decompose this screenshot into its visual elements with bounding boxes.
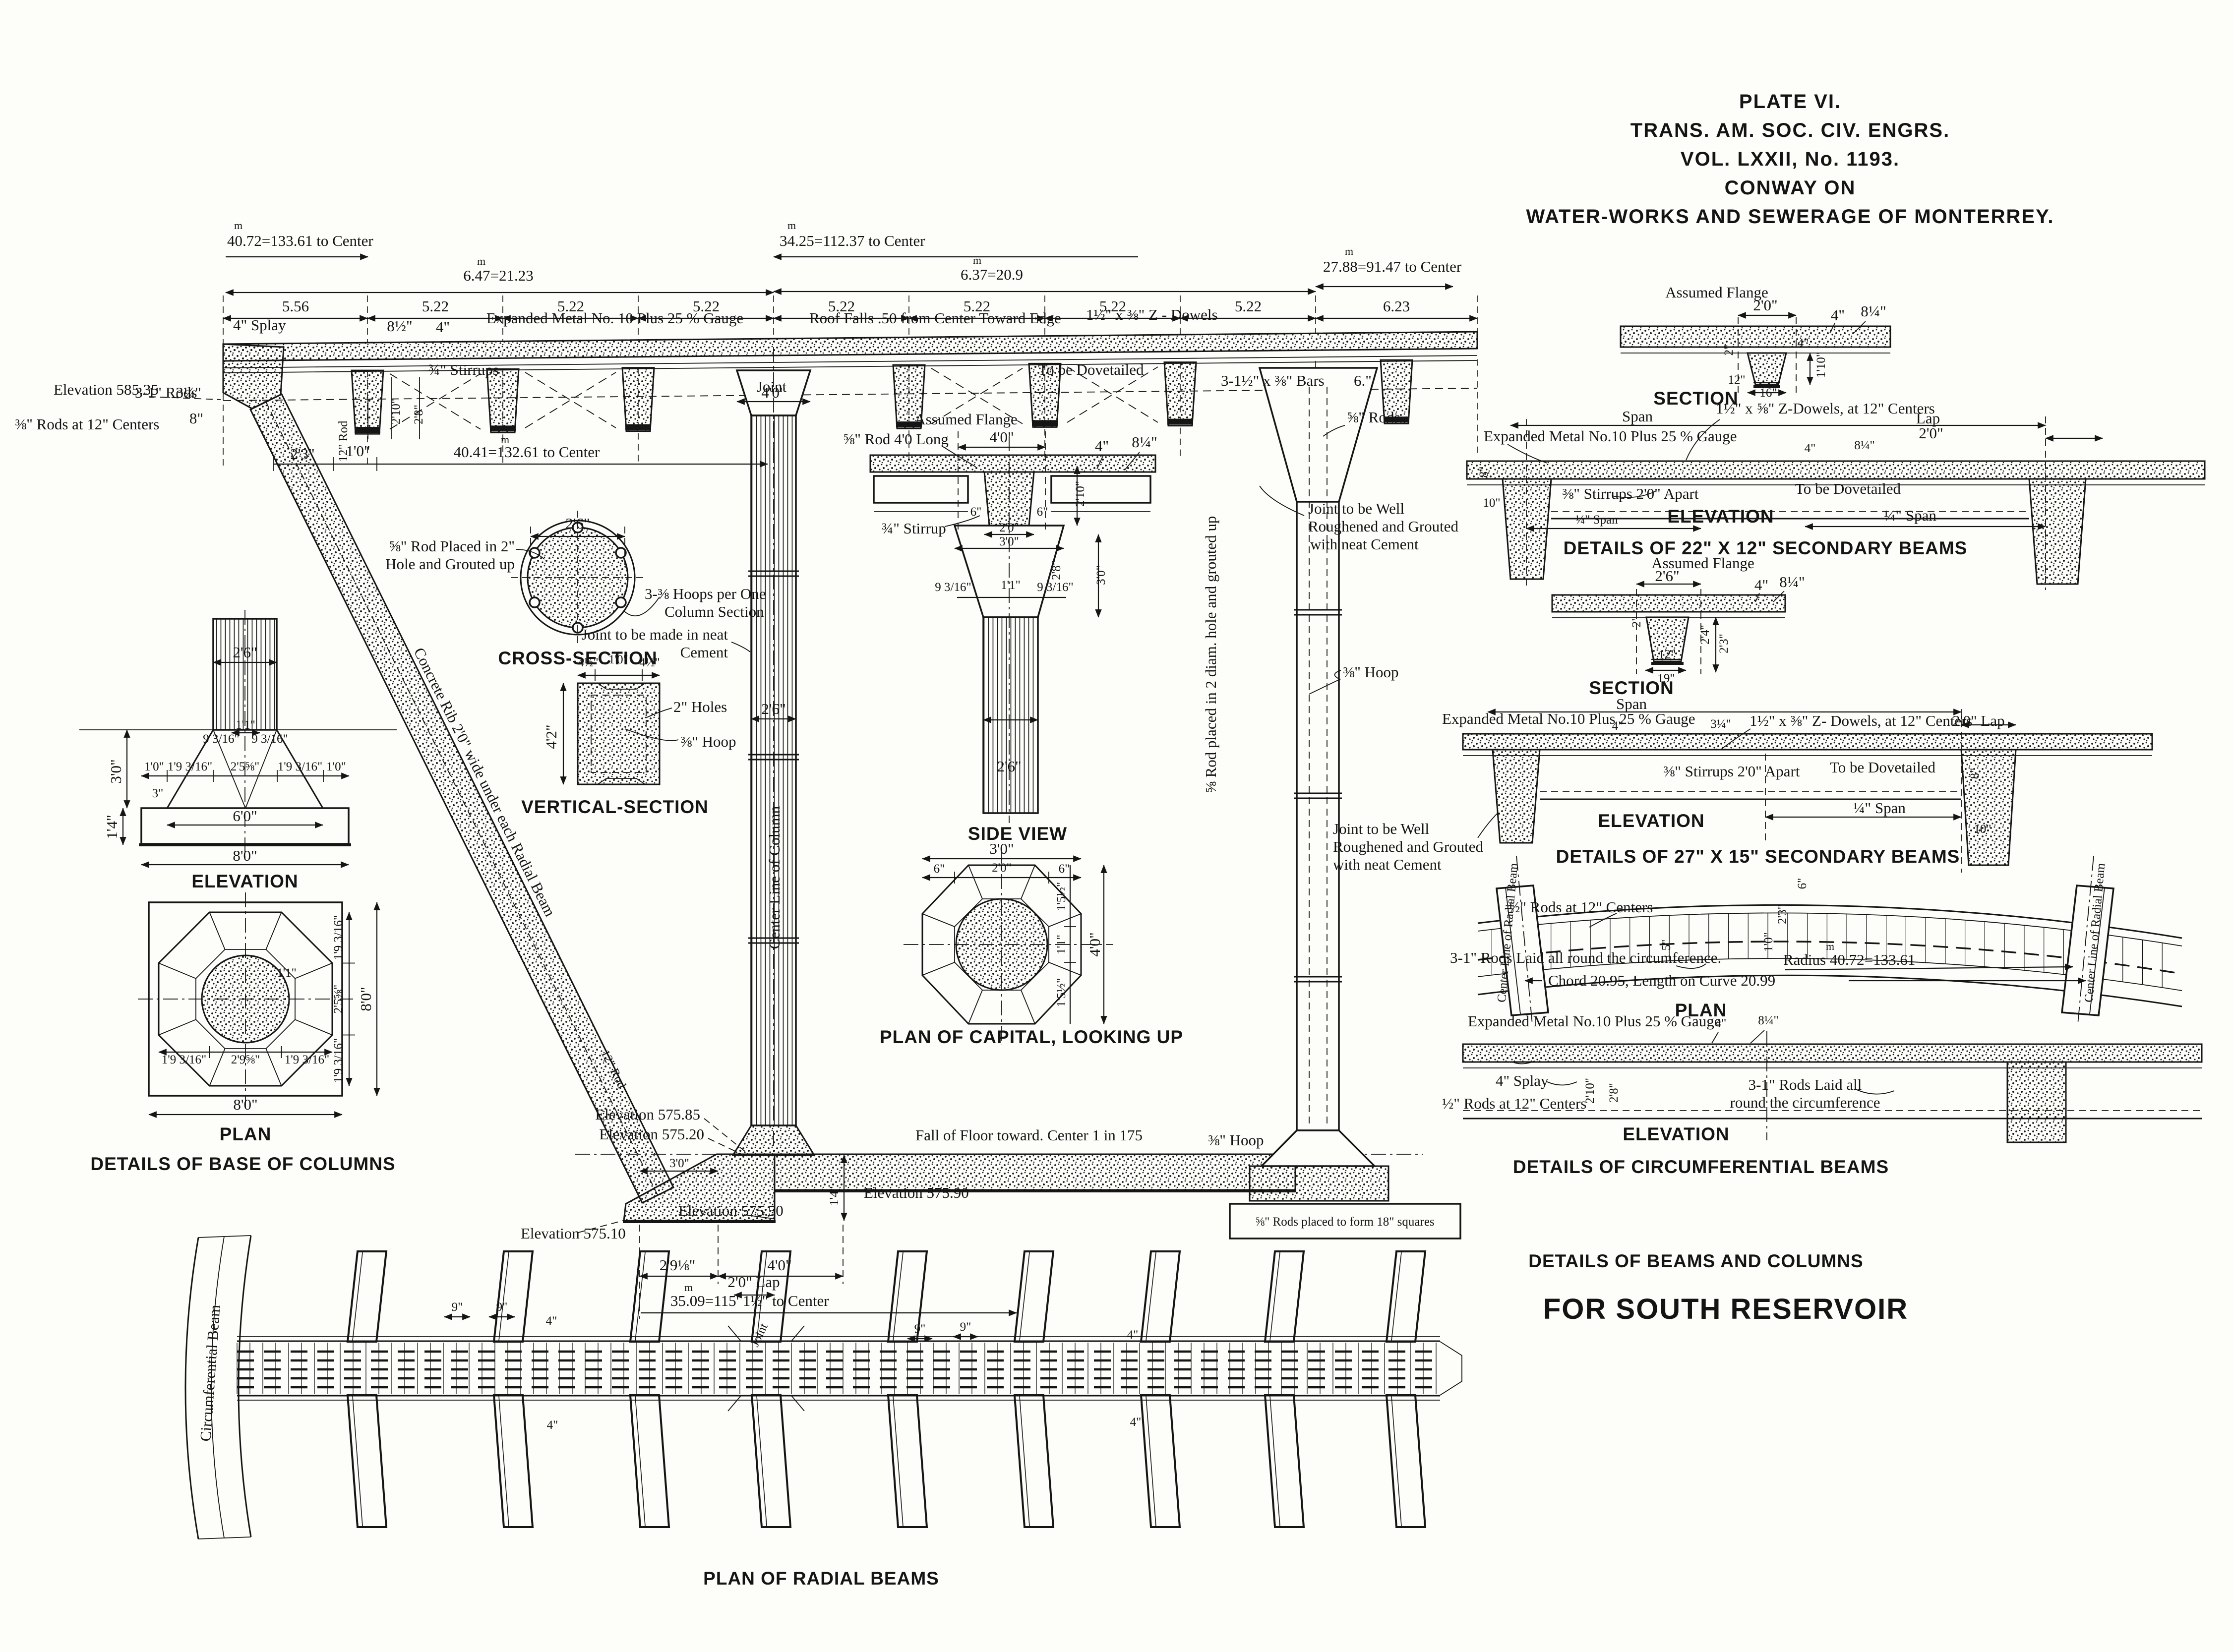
note-label: To be Dovetailed: [1795, 480, 1901, 497]
generated-line: [1164, 362, 1196, 426]
dim-label: 4'2": [543, 724, 560, 749]
note-label: 3-⅜ Hoops per One: [645, 585, 766, 602]
note-label: Expanded Metal No. 10 Plus 25 % Gauge: [486, 309, 743, 327]
dim-label: 3'0": [107, 759, 124, 783]
right-column: [1230, 368, 1460, 1239]
sheet-caption: DETAILS OF BEAMS AND COLUMNS: [1528, 1251, 1863, 1271]
dim-label: 6.37=20.9: [961, 266, 1023, 283]
dim-label: 1'4": [103, 815, 121, 839]
dim-label: 1'4": [828, 1186, 841, 1206]
dim-label: 1'5½": [1055, 978, 1068, 1007]
view-caption: ELEVATION: [1667, 506, 1774, 527]
note-label: Joint to be Well: [1308, 500, 1404, 517]
plate-number: PLATE VI.: [1739, 91, 1841, 113]
note-label: ⅝" Rod 4'0 Long: [843, 430, 949, 448]
dim-label: Radius 40.72=133.61: [1783, 951, 1915, 968]
note-label: with neat Cement: [1333, 856, 1442, 873]
dim-label: 5.56: [282, 297, 309, 315]
generated-line: [888, 1395, 927, 1527]
dim-label: 1'5½": [1055, 882, 1068, 911]
dim-label: 9 3/16": [1037, 581, 1073, 594]
dim-label: 1'9 3/16": [168, 760, 212, 773]
dim-label: 8¼": [1861, 302, 1886, 320]
dim-label: 9": [452, 1300, 463, 1314]
generated-line: [752, 1395, 790, 1527]
note-label: Hole and Grouted up: [385, 555, 515, 573]
note-label: Cement: [680, 644, 728, 661]
dim-label: 1'9 3/16": [162, 1053, 206, 1066]
dim-label: 3¼": [176, 384, 201, 401]
generated-line: [1387, 1395, 1425, 1527]
dim-label: 2'8": [412, 405, 425, 424]
dim-label: 3'0": [999, 535, 1019, 548]
dim-label: 2'0": [992, 861, 1012, 875]
author-line: CONWAY ON: [1725, 177, 1856, 199]
dim-label: 1'10": [1814, 352, 1828, 378]
dim-label: 5.22: [422, 297, 449, 315]
generated-line: [352, 370, 383, 434]
generated-line: [1265, 1395, 1304, 1527]
note-label: 2" Holes: [673, 698, 727, 715]
dim-label: 2'6": [761, 700, 785, 717]
dim-label: 4": [1127, 1328, 1139, 1342]
society-line: TRANS. AM. SOC. CIV. ENGRS.: [1630, 119, 1950, 141]
dim-label: 1'0": [144, 760, 164, 773]
dim-label: 2'3": [1717, 634, 1731, 653]
generated-line: [494, 1395, 533, 1527]
dim-label: 6'0": [233, 807, 257, 825]
dim-label: 8½": [387, 317, 412, 335]
dim-label: 6": [1796, 878, 1809, 889]
dim-label: 8": [1477, 467, 1491, 478]
dim-label: 4": [1130, 1416, 1142, 1429]
note-label: Joint to be made in neat: [582, 626, 728, 643]
meter-mark: m: [1826, 940, 1834, 952]
note-label: ⅝" Rods placed to form 18" squares: [1255, 1215, 1434, 1229]
meter-mark: m: [1345, 245, 1353, 257]
view-caption: PLAN OF CAPITAL, LOOKING UP: [880, 1027, 1183, 1047]
dim-label: 2'0": [999, 521, 1019, 534]
detail-caption: DETAILS OF BASE OF COLUMNS: [90, 1154, 395, 1174]
dim-label: 8'0": [233, 1096, 257, 1113]
dim-label: 2'3": [290, 445, 314, 463]
centerline-label: Center Line of Column: [766, 806, 783, 949]
view-caption: PLAN: [220, 1124, 272, 1144]
note-label: ½" Rods at 12" Centers: [1509, 898, 1653, 916]
dim-label: 2'6": [1655, 567, 1679, 585]
generated-line: [487, 369, 519, 432]
dim-label: 2'0": [1919, 424, 1943, 442]
dim-label: 3": [152, 787, 164, 800]
dim-label: 4": [546, 1314, 557, 1328]
dim-label: 10": [1483, 496, 1500, 510]
dim-label: 2'8": [1607, 1083, 1621, 1103]
dim-label: 12" Rod: [337, 420, 350, 462]
dim-label: 9": [960, 1320, 971, 1334]
dim-label: 9 3/16": [203, 732, 239, 746]
note-label: ¾" Stirrup: [882, 520, 946, 537]
dim-label: 2": [1630, 616, 1643, 628]
note-label: ⅜" Hoop: [1208, 1131, 1264, 1149]
dim-label: 4": [1754, 576, 1768, 593]
dim-label: 2": [1722, 345, 1736, 356]
dim-label: 2'6": [565, 515, 590, 532]
dim-label: 8¼": [1758, 1014, 1778, 1027]
dim-label: 1'0": [608, 653, 628, 666]
note-label: Roughened and Grouted: [1333, 838, 1484, 855]
dim-label: 1'1": [1001, 579, 1021, 592]
elevation-label: Elevation 575.20: [599, 1125, 704, 1143]
dim-label: 2'3": [1776, 904, 1789, 924]
dim-label: 2'0" Lap: [1952, 712, 2004, 729]
dim-label: 8¼": [1132, 433, 1157, 451]
note-label: ⅜" Hoop: [680, 733, 736, 750]
note-label: Expanded Metal No.10 Plus 25 % Gauge: [1484, 427, 1737, 445]
dim-label: 2'6": [997, 758, 1021, 775]
note-label: Assumed Flange: [914, 411, 1018, 428]
generated-line: [348, 1251, 386, 1342]
drawing-canvas: PLATE VI. TRANS. AM. SOC. CIV. ENGRS. VO…: [0, 0, 2233, 1652]
dim-label: 9": [914, 1322, 926, 1336]
dim-label: 40.41=132.61 to Center: [454, 443, 600, 461]
vertical-section: [563, 669, 678, 784]
dim-label: 2'8": [1050, 560, 1063, 580]
dim-label: 8": [1968, 768, 1982, 779]
dim-label: 12": [1728, 373, 1745, 387]
dim-label: 8¼": [1779, 573, 1805, 590]
note-label: Fall of Floor toward. Center 1 in 175: [915, 1126, 1143, 1144]
meter-mark: m: [787, 219, 796, 232]
dim-label: 8'0": [357, 987, 374, 1011]
note-label: Column Section: [664, 603, 764, 620]
generated-line: [1141, 1251, 1180, 1342]
note-label: ⅝" Rod Placed in 2": [389, 537, 515, 555]
dim-label: 1'1": [236, 718, 255, 732]
note-label: ¾" Stirrups: [428, 361, 499, 378]
dim-label: 1'9 3/16": [332, 1038, 345, 1083]
generated-line: [1387, 1251, 1425, 1342]
dim-label: 35.09=115' 1½" to Center: [670, 1292, 829, 1309]
note-label: To be Dovetailed: [1830, 759, 1936, 776]
view-caption: ELEVATION: [1623, 1124, 1729, 1144]
dim-label: 4'0": [989, 428, 1014, 446]
note-label: ⅜" Stirrups 2'0" Apart: [1562, 485, 1699, 502]
dim-label: 8¼": [1854, 439, 1874, 452]
dim-label: ¼" Span: [1884, 507, 1936, 524]
generated-line: [348, 1395, 386, 1527]
dim-label: 27.88=91.47 to Center: [1323, 258, 1462, 275]
dim-label: 4½": [578, 656, 598, 669]
dim-label: 9 3/16": [935, 581, 971, 594]
detail-caption: DETAILS OF 27" X 15" SECONDARY BEAMS: [1556, 846, 1960, 867]
dim-label: 1'1": [277, 966, 297, 980]
engineering-plate: PLATE VI. TRANS. AM. SOC. CIV. ENGRS. VO…: [0, 0, 2233, 1652]
note-label: 1½" x ⅝" Z-Dowels, at 12" Centers: [1716, 400, 1935, 417]
dim-label: 2'10": [1583, 1078, 1597, 1104]
generated-line: [1141, 1395, 1180, 1527]
dim-label: 40.72=133.61 to Center: [227, 232, 373, 249]
subject-line: WATER-WORKS AND SEWERAGE OF MONTERREY.: [1526, 206, 2054, 228]
dim-label: 5": [1660, 940, 1673, 951]
elevation-label: Elevation 575.85: [595, 1106, 700, 1123]
dim-label: 4": [1831, 306, 1845, 324]
dim-label: 1'1": [1055, 935, 1068, 954]
detail-caption: DETAILS OF CIRCUMFERENTIAL BEAMS: [1513, 1157, 1889, 1177]
dim-label: 2'5⅝": [332, 985, 345, 1013]
dim-label: 4": [1805, 442, 1816, 455]
dim-label: 2'10": [389, 399, 403, 424]
note-label: ⅝" Rods: [1347, 409, 1400, 426]
volume-line: VOL. LXXII, No. 1193.: [1681, 148, 1900, 170]
meter-mark: m: [501, 433, 509, 446]
note-label: 3-1" Rods Laid all round the circumferen…: [1450, 949, 1721, 966]
dim-label: 6.47=21.23: [463, 267, 533, 284]
dim-label: 6": [1037, 505, 1048, 519]
generated-line: [1015, 1395, 1053, 1527]
note-label: 4" Splay: [1496, 1072, 1549, 1089]
note-label: Joint to be Well: [1333, 820, 1429, 837]
view-caption: ELEVATION: [1598, 811, 1704, 831]
dim-label: 9 3/16": [251, 732, 288, 746]
meter-mark: m: [684, 1281, 693, 1294]
dim-label: 6.": [1354, 372, 1372, 389]
dim-label: 6": [970, 505, 982, 519]
meter-mark: m: [477, 255, 485, 267]
dim-label: 34.25=112.37 to Center: [780, 232, 925, 249]
dim-label: 1'0": [1762, 932, 1775, 952]
note-label: Expanded Metal No.10 Plus 25 % Gauge: [1442, 710, 1695, 727]
dim-label: 8": [189, 410, 203, 427]
dim-label: 3'0": [989, 840, 1014, 857]
view-caption: VERTICAL-SECTION: [521, 797, 709, 817]
generated-line: [630, 1395, 669, 1527]
dim-label: 2'0" Lap: [727, 1273, 780, 1291]
center-column: [731, 347, 814, 1155]
meter-mark: m: [973, 254, 981, 266]
dim-label: 1'0": [326, 760, 346, 773]
note-label: ½" Rods at 12" Centers: [1442, 1095, 1586, 1112]
note-label: Expanded Metal No.10 Plus 25 % Gauge: [1468, 1012, 1721, 1030]
dim-label: 4'0": [761, 384, 785, 401]
note-label: Roof Falls .50 from Center Toward Edge: [809, 309, 1061, 327]
dim-label: 2'10": [1074, 481, 1087, 507]
dim-label: 5.22: [1235, 297, 1262, 315]
dim-label: 1'9 3/16": [278, 760, 322, 773]
note-label: 3-1" Rods Laid all: [1749, 1076, 1862, 1093]
dim-label: 6": [1059, 862, 1070, 876]
dim-label: 4": [1612, 719, 1624, 733]
dim-label: 4'0": [1086, 932, 1103, 956]
dim-label: 6.23: [1383, 297, 1410, 315]
note-label: 1½" x ⅜" Z - Dowels: [1086, 306, 1218, 323]
dim-label: 12": [1658, 648, 1676, 661]
view-caption: SIDE VIEW: [968, 824, 1067, 844]
dim-label: 2'9⅝": [231, 1053, 260, 1066]
beam-label: Circumferential Beam: [196, 1304, 223, 1442]
generated-line: [1265, 1251, 1304, 1342]
dim-label: 2'5⅝": [231, 760, 259, 773]
dim-label: 16": [1759, 386, 1777, 400]
generated-line: [494, 1251, 533, 1342]
elevation-label: Elevation 575.90: [864, 1184, 969, 1201]
dim-label: 4½": [639, 656, 660, 669]
note-label: ⅜" Stirrups 2'0" Apart: [1663, 763, 1800, 780]
note-label: ⅜" Rods at 12" Centers: [15, 415, 159, 433]
detail-caption: PLAN OF RADIAL BEAMS: [703, 1568, 939, 1589]
dim-label: 2'0": [1753, 296, 1777, 314]
dim-label: 1'9 3/16": [332, 915, 345, 960]
dim-label: 4": [1715, 1017, 1727, 1030]
note-label: 3-1½" x ⅜" Bars: [1221, 372, 1325, 389]
elevation-label: Elevation 575.50: [678, 1202, 784, 1219]
dim-label: 2'9⅛": [660, 1256, 696, 1274]
generated-line: [1015, 1251, 1053, 1342]
dim-label: 9": [496, 1300, 508, 1314]
dim-label: Chord 20.95, Length on Curve 20.99: [1548, 972, 1775, 989]
dim-label: 4": [1095, 437, 1109, 455]
note-label: 1½" x ⅜" Z- Dowels, at 12" Centers: [1750, 712, 1973, 729]
dim-label: 8'0": [233, 847, 257, 864]
note-label: To be Dovetailed: [1038, 361, 1144, 378]
dim-label: ¼" Span: [1575, 513, 1618, 527]
sheet-title: FOR SOUTH RESERVOIR: [1543, 1293, 1908, 1325]
note-label: with neat Cement: [1310, 535, 1419, 553]
dim-label: 2'4": [1698, 625, 1712, 645]
note-label: round the circumference: [1730, 1094, 1880, 1111]
detail-caption: DETAILS OF 22" X 12" SECONDARY BEAMS: [1564, 538, 1968, 558]
dim-label: 2'6": [233, 644, 257, 661]
dim-label: 3'0": [1094, 565, 1108, 585]
note-label: ⅝ Rod placed in 2 diam. hole and grouted…: [1202, 516, 1219, 793]
elevation-label: Elevation 575.10: [521, 1225, 626, 1242]
dim-label: 6": [934, 862, 945, 876]
dim-label: 10": [1974, 823, 1991, 836]
dim-label: Span: [1622, 408, 1653, 425]
note-label: ⅜" Hoop: [1343, 663, 1399, 681]
generated-line: [622, 368, 654, 431]
note-label: 4" Splay: [233, 316, 286, 334]
dim-label: 4": [547, 1418, 558, 1432]
dim-label: 4'0": [767, 1256, 791, 1274]
view-caption: ELEVATION: [191, 871, 298, 891]
dim-label: 1'9 3/16": [285, 1053, 329, 1066]
dim-label: 4": [436, 318, 450, 336]
note-label: Roughened and Grouted: [1308, 518, 1459, 535]
dim-label: 4": [1798, 337, 1809, 350]
dim-label: 3¼": [1710, 717, 1731, 731]
meter-mark: m: [234, 219, 242, 232]
dim-label: ¼" Span: [1853, 799, 1906, 817]
capital-plan: [904, 849, 1113, 1045]
dim-label: 3'0": [669, 1157, 689, 1170]
